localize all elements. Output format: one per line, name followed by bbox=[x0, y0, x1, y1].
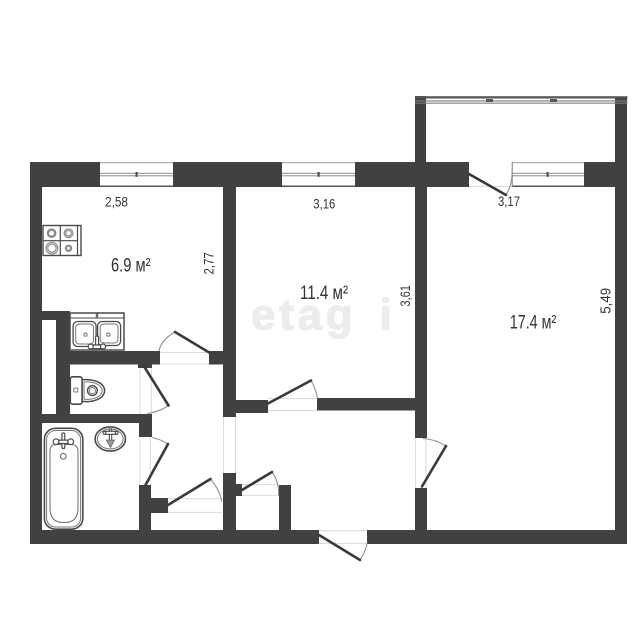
svg-text:2,77: 2,77 bbox=[202, 252, 217, 274]
svg-text:3,16: 3,16 bbox=[313, 197, 335, 212]
svg-text:2,58: 2,58 bbox=[105, 195, 128, 210]
svg-text:3,61: 3,61 bbox=[398, 285, 413, 307]
svg-text:6.9 м²: 6.9 м² bbox=[111, 256, 151, 277]
svg-text:11.4 м²: 11.4 м² bbox=[300, 283, 348, 304]
svg-text:3,17: 3,17 bbox=[498, 194, 520, 209]
svg-text:i: i bbox=[380, 291, 392, 340]
svg-text:5,49: 5,49 bbox=[598, 288, 615, 314]
svg-text:17.4 м²: 17.4 м² bbox=[510, 313, 557, 334]
